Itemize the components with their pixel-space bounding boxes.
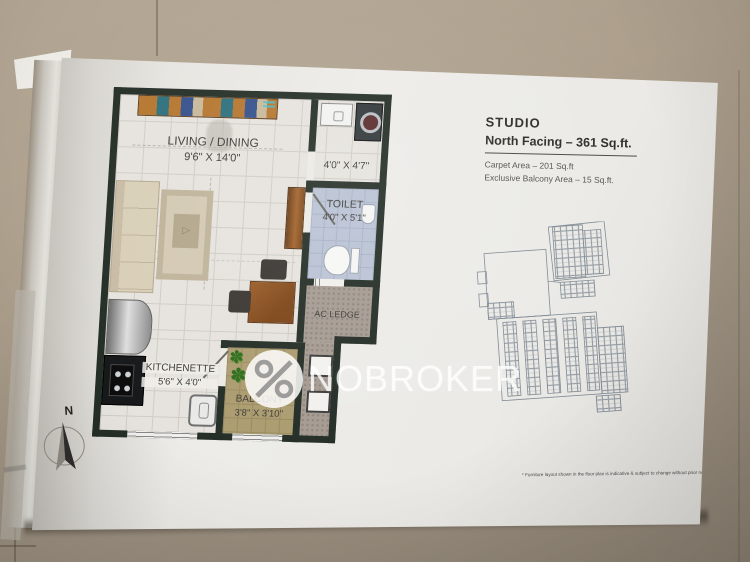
unit-title: STUDIO	[485, 114, 637, 132]
room-dims-toilet: 4'0" X 5'1"	[311, 213, 378, 225]
north-compass: N	[37, 402, 90, 482]
rug-motif: ▷	[172, 214, 200, 249]
brochure-page: ▷ ✽ ✽	[30, 50, 722, 534]
floor-grout-line	[0, 545, 36, 547]
unit-info-block: STUDIO North Facing – 361 Sq.ft. Carpet …	[484, 114, 637, 185]
room-label-kitchenette: KITCHENETTE	[142, 362, 219, 375]
wardrobe-tags	[263, 101, 276, 110]
rug: ▷	[156, 189, 214, 280]
room-dims-kitchenette: 5'6" X 4'0"	[141, 377, 218, 390]
floor-grout-line	[738, 70, 740, 562]
wc-bowl	[322, 245, 351, 276]
balcony-area-line: Exclusive Balcony Area – 15 Sq.ft.	[484, 172, 636, 185]
hob-icon	[109, 364, 135, 397]
balcony-railing	[232, 433, 282, 441]
sofa	[109, 180, 160, 293]
floor-grout-line	[156, 0, 158, 56]
unit-facing-area: North Facing – 361 Sq.ft.	[485, 133, 637, 156]
wall	[221, 340, 228, 348]
disclaimer-text: * Furniture layout shown in the floor pl…	[522, 470, 712, 478]
wardrobe-strip	[137, 95, 278, 120]
desk-table	[247, 281, 296, 324]
chair	[260, 259, 287, 280]
room-label-ac-ledge: AC LEDGE	[300, 309, 375, 321]
chair	[228, 290, 251, 313]
toilet-wc-icon	[322, 245, 360, 276]
plant-icon: ✽	[229, 348, 244, 365]
watermark-brand-text: NOBROKER	[308, 358, 522, 400]
wall	[344, 280, 380, 288]
room-dims-balcony: 3'8" X 3'10"	[223, 408, 294, 420]
wall	[306, 180, 314, 192]
kitchen-window	[127, 431, 197, 440]
utility-sink-icon	[320, 103, 353, 127]
kitchen-counter	[101, 355, 146, 406]
washing-machine-icon	[354, 103, 383, 142]
room-label-toilet: TOILET	[312, 199, 379, 212]
north-arrow-icon	[38, 416, 90, 477]
kitchen-sink-icon	[188, 394, 218, 427]
tv-unit	[105, 299, 153, 355]
wall	[300, 278, 314, 285]
photo-of-brochure: ▷ ✽ ✽	[0, 0, 750, 562]
wc-tank	[350, 248, 361, 274]
nobroker-percent-logo-icon	[244, 349, 304, 409]
carpet-area-line: Carpet Area – 201 Sq.ft	[485, 159, 637, 172]
toilet-window	[314, 279, 344, 287]
nobroker-watermark: NOBROKER	[244, 349, 522, 409]
